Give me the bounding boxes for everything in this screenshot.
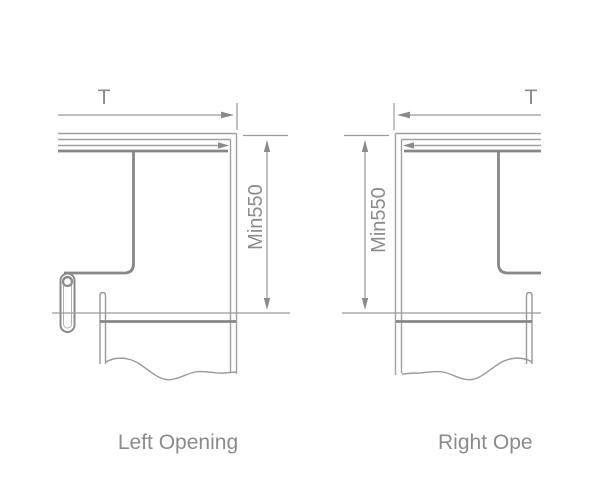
left-countertop xyxy=(58,134,237,152)
slide-direction-arrow-icon xyxy=(218,142,229,148)
cabinet-opening-line-drawing xyxy=(0,0,600,480)
technical-drawing-canvas: T T Min550 Min550 Left Opening Right Ope xyxy=(0,0,600,480)
arrowhead-left xyxy=(397,112,410,119)
arrowhead-down xyxy=(264,298,270,310)
right-width-dimension-label: T xyxy=(511,87,551,109)
right-door-panel xyxy=(499,151,542,273)
left-hinge xyxy=(61,274,75,333)
right-front-post xyxy=(527,293,533,365)
left-bottom-rail xyxy=(52,313,290,322)
arrowhead-right xyxy=(221,112,234,119)
right-break-line xyxy=(402,358,532,380)
slide-direction-arrow-icon xyxy=(403,142,414,148)
right-diagram-side-wall xyxy=(396,134,402,376)
left-front-post xyxy=(100,293,106,365)
left-door-panel xyxy=(64,151,134,273)
right-bottom-rail xyxy=(342,313,541,322)
left-diagram-caption: Left Opening xyxy=(98,432,258,454)
left-break-line xyxy=(106,358,236,380)
arrowhead-down xyxy=(362,298,368,310)
left-diagram-side-wall xyxy=(231,134,237,375)
right-height-dimension-label: Min550 xyxy=(368,145,390,295)
left-height-dimension-label: Min550 xyxy=(245,142,267,292)
left-width-dimension-label: T xyxy=(84,87,124,109)
right-countertop xyxy=(396,134,542,152)
right-diagram-caption: Right Ope xyxy=(438,432,533,454)
